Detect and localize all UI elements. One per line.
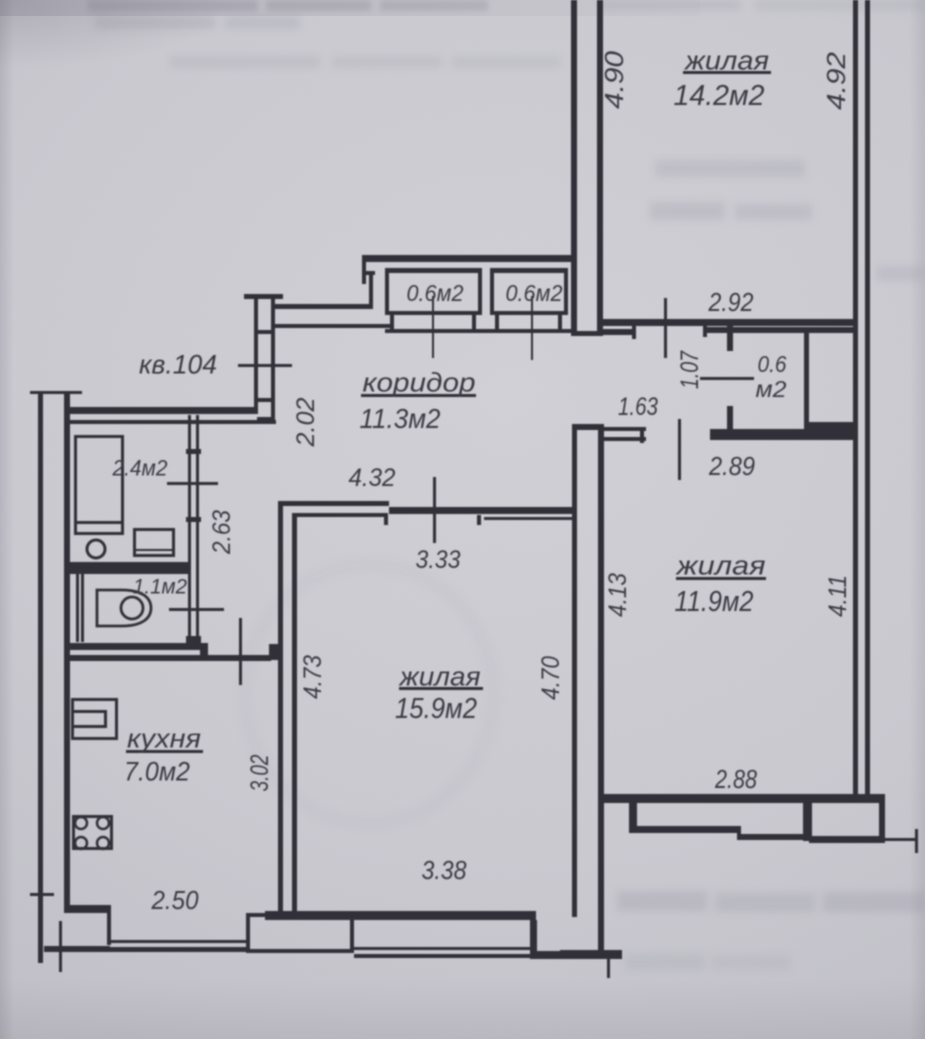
svg-text:11.3м2: 11.3м2: [360, 403, 441, 434]
svg-text:кв.104: кв.104: [139, 349, 217, 379]
svg-text:4.90: 4.90: [599, 50, 629, 109]
svg-text:0.6м2: 0.6м2: [506, 280, 563, 306]
svg-text:1.1м2: 1.1м2: [133, 575, 187, 598]
svg-text:жилая: жилая: [398, 661, 480, 691]
svg-text:жилая: жилая: [675, 550, 765, 580]
svg-text:2.50: 2.50: [151, 885, 199, 915]
svg-text:15.9м2: 15.9м2: [395, 693, 477, 725]
svg-text:4.13: 4.13: [604, 573, 632, 617]
svg-text:1.63: 1.63: [618, 393, 658, 421]
svg-text:7.0м2: 7.0м2: [124, 756, 190, 786]
svg-text:4.32: 4.32: [349, 464, 396, 492]
svg-text:0.6м2: 0.6м2: [407, 280, 464, 306]
svg-text:1.07: 1.07: [676, 350, 704, 389]
svg-text:м2: м2: [756, 376, 787, 402]
svg-text:кухня: кухня: [127, 723, 201, 753]
svg-text:4.92: 4.92: [821, 51, 851, 110]
svg-text:2.88: 2.88: [714, 764, 757, 794]
svg-text:4.73: 4.73: [299, 655, 327, 699]
svg-text:2.89: 2.89: [708, 451, 755, 481]
svg-text:3.02: 3.02: [246, 754, 274, 791]
svg-text:2.4м2: 2.4м2: [112, 456, 168, 481]
svg-text:2.02: 2.02: [292, 397, 320, 447]
svg-text:жилая: жилая: [684, 45, 769, 75]
svg-text:2.92: 2.92: [708, 287, 754, 317]
svg-text:3.38: 3.38: [422, 855, 467, 885]
svg-text:11.9м2: 11.9м2: [675, 586, 754, 618]
svg-text:14.2м2: 14.2м2: [674, 80, 765, 112]
svg-text:0.6: 0.6: [758, 351, 787, 377]
svg-text:4.11: 4.11: [824, 575, 852, 617]
svg-text:2.63: 2.63: [208, 510, 236, 555]
svg-text:4.70: 4.70: [537, 656, 565, 700]
svg-text:коридор: коридор: [363, 367, 476, 397]
svg-text:3.33: 3.33: [416, 546, 461, 574]
